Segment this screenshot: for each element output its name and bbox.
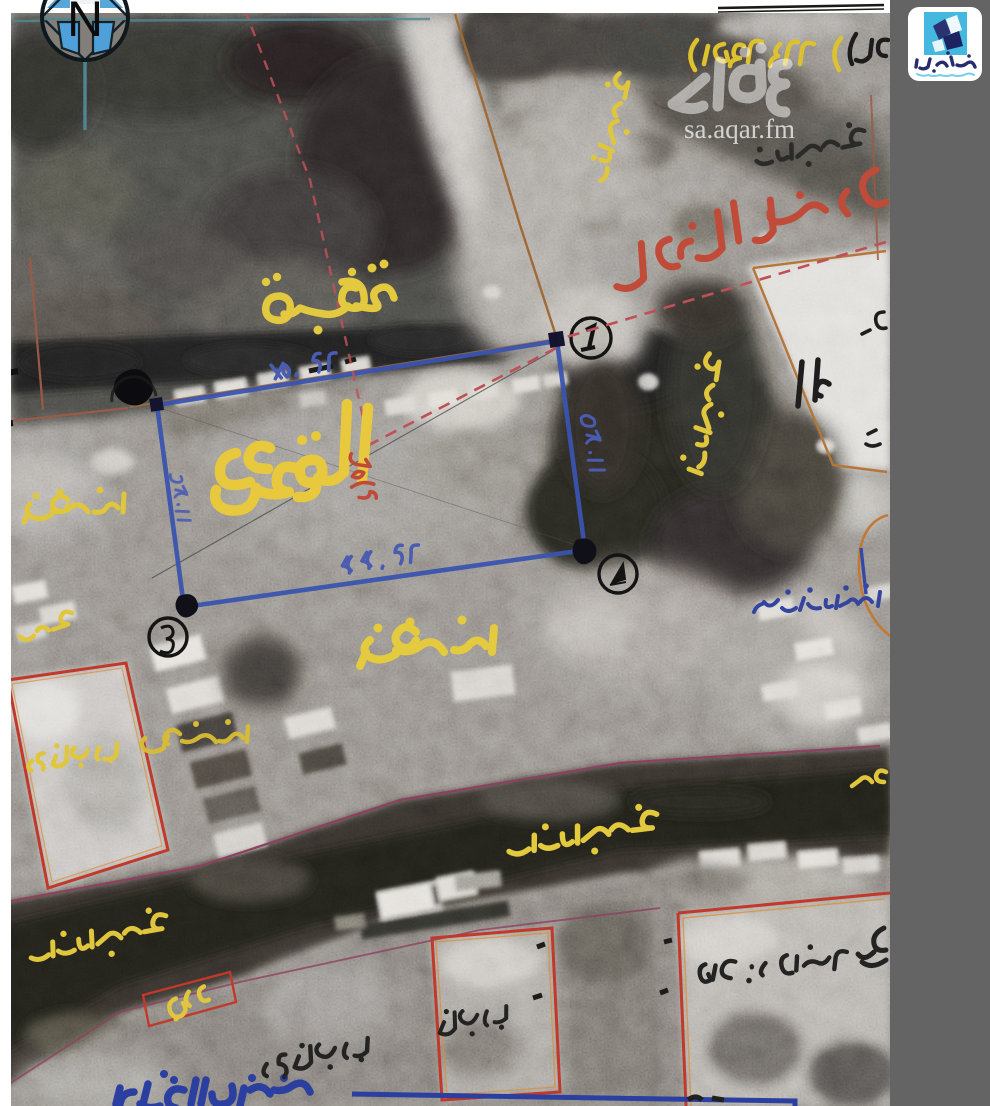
svg-text:sa.aqar.fm: sa.aqar.fm: [684, 114, 795, 144]
svg-text:N: N: [67, 0, 103, 47]
